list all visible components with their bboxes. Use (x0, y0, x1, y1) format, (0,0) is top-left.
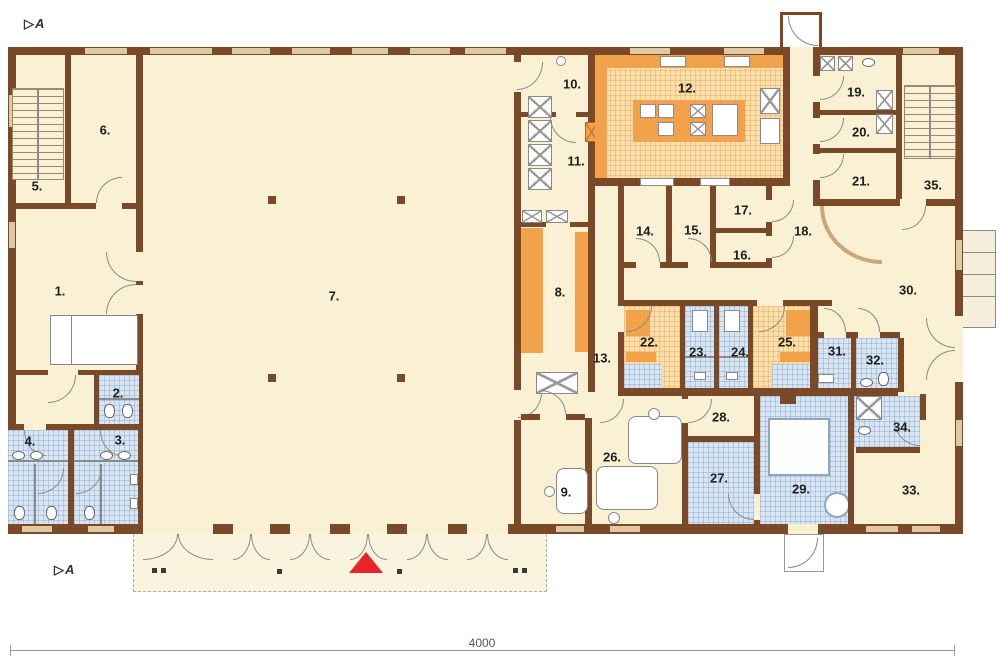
sink-icon (100, 451, 113, 460)
sink-icon (838, 56, 853, 71)
wall-segment (780, 392, 796, 404)
room-number-label: 24. (731, 345, 749, 360)
sink-icon (858, 426, 871, 435)
toilet-icon (104, 404, 115, 418)
window-segment (352, 48, 388, 54)
column-marker (513, 568, 518, 573)
fixture-icon (724, 56, 750, 67)
room-number-label: 31. (828, 344, 846, 359)
window-segment (85, 48, 127, 54)
wall-segment (783, 47, 790, 178)
column-marker (277, 569, 282, 574)
equipment-icon (528, 168, 552, 190)
wall-segment (136, 47, 143, 252)
partition-line (963, 296, 995, 297)
room-number-label: 13. (593, 351, 611, 366)
stove-icon (712, 104, 738, 136)
wall-segment (618, 186, 624, 306)
wall-segment (920, 394, 926, 420)
pool (768, 418, 830, 476)
floor-plan: ▷A ▷A 4000 1. 2. 3. 4. 5. 6. 7. 8. 9. 10… (0, 0, 1000, 666)
shower-tray-icon (694, 372, 706, 380)
counter-segment (595, 55, 783, 68)
entrance-marker-icon (349, 552, 383, 573)
room-number-label: 23. (689, 345, 707, 360)
wall-segment (712, 262, 766, 268)
shower-bench (724, 310, 740, 332)
sink-icon (12, 451, 25, 460)
chair-icon (544, 486, 555, 497)
wall-segment (926, 199, 962, 206)
window-segment (956, 240, 962, 270)
section-marker-top: ▷A (24, 16, 44, 32)
room-number-label: 5. (32, 179, 43, 194)
room-number-label: 35. (924, 178, 942, 193)
wall-segment (514, 92, 521, 390)
wall-segment (880, 332, 900, 338)
wall-segment (766, 258, 772, 268)
window-segment (866, 526, 898, 532)
section-cut-icon: ▷ (54, 562, 64, 577)
changing-bench (786, 310, 810, 336)
desk (596, 466, 658, 510)
fixture-icon (640, 178, 674, 186)
wall-segment (521, 414, 540, 420)
chair-icon (608, 512, 620, 524)
wall-segment (680, 306, 685, 392)
wall-segment (813, 180, 820, 199)
equipment-icon (528, 144, 552, 166)
room-number-label: 33. (902, 483, 920, 498)
wall-segment (65, 47, 71, 203)
room-number-label: 17. (734, 203, 752, 218)
partition-line (963, 274, 995, 275)
wall-segment (820, 148, 896, 153)
wall-segment (896, 47, 902, 199)
window-segment (724, 48, 764, 54)
wall-segment (898, 338, 904, 392)
column-marker (161, 568, 166, 573)
wall-segment (68, 430, 74, 524)
column-icon (397, 374, 405, 382)
floor-opening (788, 524, 818, 534)
room-number-label: 10. (563, 77, 581, 92)
changing-bench (626, 352, 656, 362)
equipment-icon (876, 90, 893, 110)
wall-segment (588, 47, 595, 392)
room-number-label: 19. (847, 85, 865, 100)
window-segment (88, 526, 114, 532)
wall-segment (766, 222, 772, 236)
wall-segment (618, 262, 636, 268)
bed (50, 315, 138, 365)
toilet-icon (46, 506, 57, 520)
counter-segment (595, 55, 607, 178)
room-number-label: 30. (899, 283, 917, 298)
floor-opening (143, 524, 213, 534)
room-number-label: 11. (567, 154, 584, 169)
room-number-label: 29. (792, 482, 810, 497)
equipment-icon (760, 88, 780, 114)
wall-segment (514, 420, 521, 524)
equipment-icon (522, 210, 542, 223)
partition-line (963, 252, 995, 253)
room-number-label: 6. (100, 123, 111, 138)
room-number-label: 14. (636, 224, 654, 239)
wall-segment (576, 112, 588, 117)
window-segment (956, 420, 962, 446)
tiled-wet-floor (624, 364, 662, 388)
wall-segment (955, 47, 963, 534)
stove-icon (760, 118, 780, 144)
toilet-icon (84, 506, 95, 520)
tiled-wet-floor (772, 364, 810, 388)
wall-segment (660, 262, 688, 268)
room-number-label: 1. (55, 284, 66, 299)
floor-opening (407, 524, 448, 534)
room-number-label: 3. (115, 433, 126, 448)
section-cut-icon: ▷ (24, 16, 34, 31)
dimension-line (954, 645, 955, 656)
floor-opening (955, 316, 963, 382)
boiler-icon (556, 56, 566, 66)
window-segment (912, 526, 940, 532)
wall-segment (514, 47, 521, 62)
equipment-icon (546, 210, 568, 223)
dimension-line (10, 645, 11, 656)
wall-segment (588, 178, 790, 186)
window-segment (903, 48, 939, 54)
column-marker (397, 569, 402, 574)
floor-opening (290, 524, 330, 534)
room-number-label: 22. (640, 335, 658, 350)
sink-icon (30, 451, 43, 460)
partition-line (929, 85, 931, 159)
servery-counter (521, 228, 543, 353)
partition-line (74, 460, 138, 462)
room-number-label: 2. (113, 386, 124, 401)
room-number-label: 8. (555, 285, 566, 300)
fixture-icon (658, 104, 674, 118)
room-number-label: 16. (733, 248, 751, 263)
wall-segment (710, 228, 766, 233)
equipment-icon (528, 120, 552, 142)
wall-segment (666, 186, 672, 268)
wall-segment (714, 306, 719, 392)
partition-line (37, 88, 39, 180)
window-segment (292, 48, 330, 54)
wall-segment (813, 144, 820, 154)
urinal-icon (130, 498, 138, 509)
hot-tub (824, 492, 850, 518)
room-number-label: 28. (712, 410, 730, 425)
room-number-label: 21. (852, 174, 870, 189)
sink-icon (118, 451, 131, 460)
shower-tray-icon (856, 396, 882, 420)
dimension-line (10, 650, 955, 651)
sink-icon (818, 374, 834, 383)
window-segment (465, 48, 506, 54)
sink-icon (860, 378, 873, 387)
room-number-label: 25. (778, 335, 796, 350)
floor-opening (233, 524, 270, 534)
room-number-label: 15. (684, 223, 702, 238)
fixture-icon (700, 178, 730, 186)
floor-opening (350, 524, 387, 534)
toilet-icon (878, 372, 889, 386)
partition-line (8, 460, 68, 462)
wall-segment (783, 300, 832, 306)
window-segment (630, 48, 670, 54)
column-icon (268, 196, 276, 204)
wall-segment (136, 281, 143, 285)
changing-bench (780, 352, 810, 362)
window-segment (232, 48, 270, 54)
wall-segment (856, 447, 920, 453)
section-marker-bottom: ▷A (54, 562, 74, 578)
room-number-label: 12. (678, 81, 696, 96)
column-icon (268, 374, 276, 382)
column-icon (397, 196, 405, 204)
room-number-label: 18. (794, 224, 812, 239)
equipment-icon (528, 96, 552, 118)
fixture-icon (640, 104, 656, 118)
wall-segment (8, 203, 96, 209)
chair-icon (648, 408, 660, 420)
fixture-icon (658, 122, 674, 136)
column-marker (152, 568, 157, 573)
wall-segment (8, 370, 48, 375)
wall-segment (813, 102, 820, 118)
room-number-label: 32. (866, 353, 884, 368)
wall-segment (566, 414, 585, 420)
room-number-label: 34. (893, 420, 911, 435)
column-marker (522, 568, 527, 573)
exterior-steps (962, 230, 996, 328)
dimension-label: 4000 (463, 636, 502, 650)
room-number-label: 4. (25, 434, 36, 449)
wall-segment (813, 199, 900, 206)
fixture-icon (660, 56, 686, 67)
equipment-icon (876, 114, 893, 134)
wall-segment (570, 222, 588, 227)
window-segment (556, 526, 584, 532)
floor-opening (467, 524, 508, 534)
toilet-icon (14, 506, 25, 520)
desk (628, 416, 682, 464)
room-number-label: 20. (852, 125, 870, 140)
room-number-label: 7. (329, 289, 340, 304)
window-segment (9, 222, 15, 248)
urinal-icon (130, 474, 138, 485)
window-segment (610, 526, 640, 532)
equipment-icon (690, 122, 706, 136)
partition-line (34, 464, 36, 524)
sink-icon (862, 58, 875, 67)
wall-segment (851, 338, 856, 388)
sink-icon (820, 56, 835, 71)
room-number-label: 9. (561, 485, 572, 500)
room-number-label: 27. (710, 471, 728, 486)
window-segment (150, 48, 212, 54)
shower-bench (692, 310, 708, 332)
shower-tray-icon (726, 372, 738, 380)
window-segment (410, 48, 450, 54)
room-number-label: 26. (603, 450, 621, 465)
wall-segment (813, 47, 820, 76)
toilet-icon (122, 404, 133, 418)
wall-segment (766, 186, 772, 200)
equipment-icon (690, 104, 706, 118)
servery-counter (575, 232, 588, 352)
window-segment (22, 526, 52, 532)
